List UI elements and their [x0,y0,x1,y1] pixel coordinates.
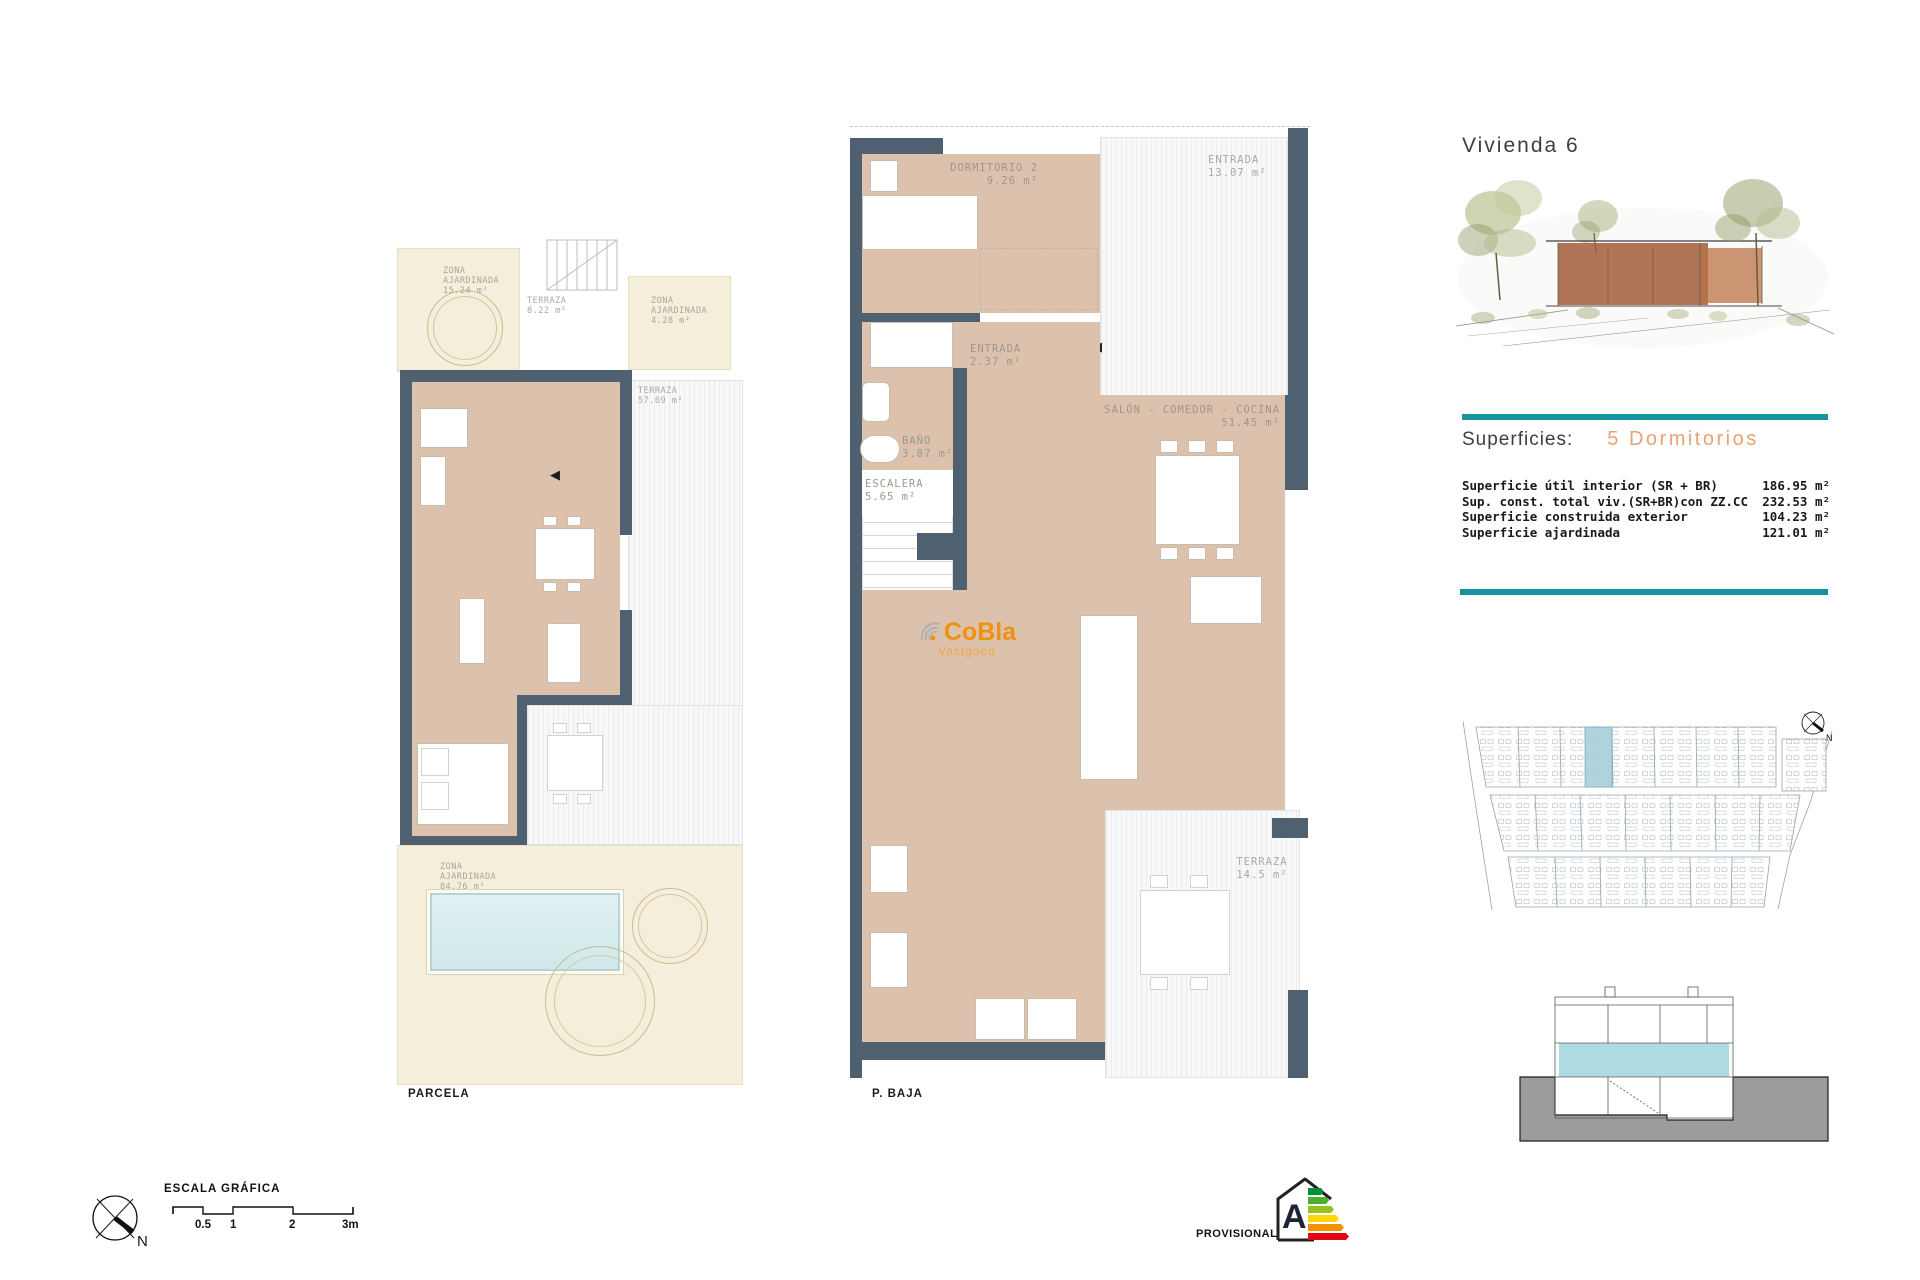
scale-tick: 2 [289,1219,295,1231]
chair-symbol [577,723,591,733]
chair-symbol [543,582,557,592]
section-diagram [1510,955,1840,1150]
row-value: 186.95 m² [1762,478,1830,494]
wall [1288,990,1308,1078]
kitchen-island-symbol [459,598,485,664]
wall [850,1042,1110,1060]
room-label: ZONA AJARDINADA 4.28 m² [651,296,707,327]
terrace-area [628,380,743,738]
room-label: TERRAZA 8.22 m² [527,296,566,316]
row-label: Sup. const. total viv.(SR+BR)con ZZ.CC [1462,494,1748,510]
table-symbol [1155,455,1240,545]
scale-tick: 1 [230,1219,237,1231]
chair-symbol [1150,977,1168,990]
kitchen-counter-symbol [975,998,1025,1040]
superficies-heading: Superficies: [1462,429,1573,451]
kitchen-counter-symbol [1027,998,1077,1040]
sofa-symbol [1190,576,1262,624]
chair-symbol [1160,440,1178,453]
wall [1272,818,1308,838]
energy-rating-icon: A [1268,1168,1356,1250]
wall [1285,395,1308,490]
door-arrow-icon: ◀ [550,468,560,481]
superficies-heading-row: Superficies: 5 Dormitorios [1462,428,1862,451]
room-label: DORMITORIO 2 9.26 m² [938,162,1038,187]
room-label: TERRAZA 14.5 m² [1222,856,1302,881]
chair-symbol [1188,547,1206,560]
chair-symbol [553,723,567,733]
table-symbol [1140,890,1230,975]
plan-sheet: ZONA AJARDINADA 15.24 m² TERRAZA 8.22 m²… [0,0,1920,1280]
bedroom-count: 5 Dormitorios [1607,428,1758,451]
tree-symbol [545,946,655,1056]
hob-symbol [421,782,449,810]
wall [850,138,943,154]
stair-symbol [545,238,620,294]
sink-symbol [421,748,449,776]
watermark-brand: CoBla [944,618,1016,646]
wall [1288,128,1308,406]
table-row: Superficie ajardinada 121.01 m² [1462,525,1830,541]
planta-baja-caption: P. BAJA [872,1088,923,1100]
section-highlight-band [1559,1043,1729,1077]
tree-symbol [632,888,708,964]
room-label: ZONA AJARDINADA 84.76 m² [440,862,496,893]
boundary-dashed-line [850,126,1310,127]
kitchen-island-symbol [1080,615,1138,780]
chair-symbol [1150,875,1168,888]
room-label: TERRAZA 57.69 m² [638,386,683,406]
scale-tick: 3m [342,1219,359,1231]
provisional-stamp: PROVISIONAL [1196,1228,1277,1240]
wall [400,370,632,382]
toilet-symbol [860,435,900,463]
row-label: Superficie útil interior (SR + BR) [1462,478,1718,494]
row-value: 104.23 m² [1762,509,1830,525]
chair-symbol [567,582,581,592]
wall [517,695,632,705]
chair-symbol [577,794,591,804]
chair-symbol [1190,977,1208,990]
table-row: Superficie útil interior (SR + BR) 186.9… [1462,478,1830,494]
north-label: N [137,1233,148,1250]
divider-rule [1462,414,1828,420]
sink-symbol [870,845,908,893]
wall [400,370,412,848]
room-label: BAÑO 3.87 m² [902,435,953,460]
table-row: Superficie construida exterior 104.23 m² [1462,509,1830,525]
parcela-caption: PARCELA [408,1088,470,1100]
table-symbol [535,528,595,580]
room-label: ENTRADA 13.07 m² [1208,154,1267,179]
bed-symbol [420,408,468,448]
room-label: ENTRADA 2.37 m² [970,343,1021,368]
parcela-plan: ZONA AJARDINADA 15.24 m² TERRAZA 8.22 m²… [395,238,750,1088]
planta-baja-plan: DORMITORIO 2 9.26 m² ENTRADA 13.07 m² ◀ … [850,118,1320,1083]
closet-symbol [420,456,446,506]
svg-text:N: N [1826,733,1833,743]
north-compass-icon: N [85,1186,165,1256]
divider-rule [1460,589,1828,595]
table-row: Sup. const. total viv.(SR+BR)con ZZ.CC 2… [1462,494,1830,510]
chair-symbol [543,516,557,526]
chair-symbol [1216,547,1234,560]
chair-symbol [1190,875,1208,888]
hob-symbol [870,932,908,988]
closet-symbol [870,160,898,192]
site-compass-icon: N [1802,712,1833,743]
watermark: CoBla Vastgoed [902,618,1032,658]
row-label: Superficie ajardinada [1462,525,1620,541]
site-plan: N [1460,705,1840,910]
wall [917,533,967,560]
wall [860,313,980,322]
watermark-sub: Vastgoed [902,644,1032,658]
closet-symbol [870,322,953,368]
chair-symbol [553,794,567,804]
wall [517,705,527,848]
sofa-symbol [547,623,581,683]
room-label: ESCALERA 5.65 m² [865,478,924,503]
chair-symbol [1188,440,1206,453]
kitchen-floor [862,590,1105,1060]
row-value: 121.01 m² [1762,525,1830,541]
scale-title: ESCALA GRÁFICA [164,1182,280,1195]
wall [620,610,632,705]
scale-tick: 0.5 [195,1219,212,1231]
chair-symbol [567,516,581,526]
table-symbol [547,735,603,791]
bed-symbol [862,195,978,250]
row-value: 232.53 m² [1762,494,1830,510]
watercolor-sketch [1448,158,1838,398]
graphic-scale: ESCALA GRÁFICA 0.5 1 2 3m [158,1176,388,1238]
energy-rating-letter: A [1282,1198,1307,1236]
wall [953,368,967,472]
chair-symbol [1160,547,1178,560]
dashed-zone [980,248,1098,310]
tree-symbol [427,290,503,366]
wall [620,370,632,535]
room-label: ZONA AJARDINADA 15.24 m² [443,266,499,297]
superficies-table: Superficie útil interior (SR + BR) 186.9… [1462,478,1830,540]
watermark-logo-icon [918,620,944,644]
chair-symbol [1216,440,1234,453]
room-label: SALÓN - COMEDOR - COCINA 51.45 m² [1040,404,1280,429]
wall [850,138,862,1078]
page-title: Vivienda 6 [1462,134,1580,158]
sink-symbol [862,382,890,422]
row-label: Superficie construida exterior [1462,509,1688,525]
